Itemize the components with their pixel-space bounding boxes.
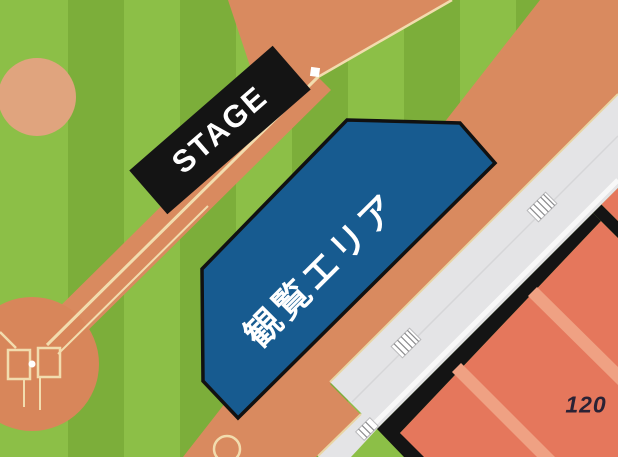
bullpen-mound-circle	[0, 58, 76, 136]
field-map-canvas	[0, 0, 618, 457]
stadium-seat-map: STAGE 観覧エリア 120	[0, 0, 618, 457]
home-plate-marker	[29, 361, 36, 368]
base-marker	[310, 67, 320, 77]
